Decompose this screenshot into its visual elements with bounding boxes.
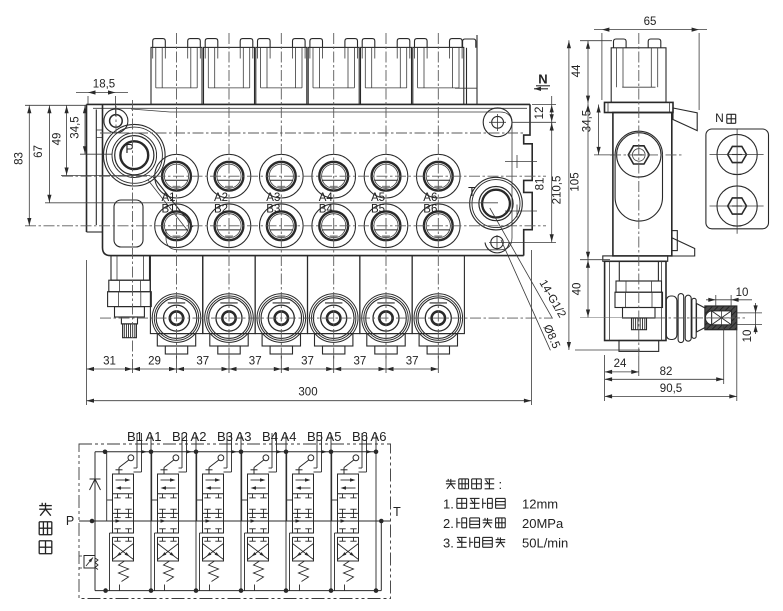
svg-text:210,5: 210,5 [552,176,564,205]
svg-text:N: N [538,72,547,87]
svg-text:37: 37 [354,356,367,368]
svg-text:40: 40 [572,283,584,296]
svg-text:49: 49 [52,133,64,146]
svg-text:T: T [393,505,401,519]
svg-text:37: 37 [301,356,314,368]
svg-text:A2: A2 [214,192,228,204]
svg-text:12mm: 12mm [522,497,558,512]
svg-text:37: 37 [249,356,262,368]
svg-text:44: 44 [571,64,583,77]
svg-text:31: 31 [103,356,116,368]
svg-text:37: 37 [196,356,209,368]
svg-text:B6: B6 [423,203,437,215]
svg-text:29: 29 [148,356,161,368]
svg-text:B2: B2 [214,203,228,215]
svg-text:A1: A1 [162,192,176,204]
svg-text:B4: B4 [319,203,334,215]
svg-text:A6: A6 [423,192,437,204]
svg-text:82: 82 [660,366,673,378]
svg-text:A3: A3 [266,192,280,204]
svg-text:18,5: 18,5 [93,79,115,91]
svg-text:A1: A1 [146,429,162,444]
svg-text:B1: B1 [127,429,143,444]
svg-text:A5: A5 [326,429,342,444]
svg-text:A6: A6 [371,429,387,444]
svg-text:T: T [468,185,476,199]
svg-text:B2: B2 [172,429,188,444]
svg-text:10: 10 [736,287,749,299]
svg-text:B1: B1 [162,203,176,215]
svg-text:N: N [715,111,724,125]
svg-text:20MPa: 20MPa [522,516,564,531]
svg-text:B6: B6 [352,429,368,444]
svg-text:B4: B4 [262,429,278,444]
svg-text:B5: B5 [307,429,323,444]
svg-text:2.: 2. [443,516,454,531]
svg-text:A2: A2 [191,429,207,444]
svg-text:3.: 3. [443,536,454,551]
svg-text:24: 24 [614,358,627,370]
svg-text:10: 10 [742,330,754,343]
svg-text:34,5: 34,5 [582,110,594,132]
svg-text:1.: 1. [443,497,454,512]
svg-text:37: 37 [406,356,419,368]
svg-text:B3: B3 [266,203,280,215]
svg-text:50L/min: 50L/min [522,536,568,551]
svg-text:A4: A4 [319,192,334,204]
svg-text:A4: A4 [281,429,297,444]
svg-text:12: 12 [534,107,546,120]
svg-text:P: P [66,514,74,528]
svg-text:105: 105 [570,172,582,191]
svg-text:34,5: 34,5 [70,116,82,138]
svg-text:67: 67 [33,145,45,158]
svg-text::: : [499,477,503,492]
svg-text:A5: A5 [371,192,385,204]
svg-text:65: 65 [644,16,657,28]
svg-text:83: 83 [14,152,26,165]
svg-text:B5: B5 [371,203,385,215]
svg-text:300: 300 [298,387,317,399]
svg-text:81: 81 [535,178,547,191]
svg-text:B3: B3 [217,429,233,444]
svg-text:A3: A3 [236,429,252,444]
svg-text:90,5: 90,5 [660,383,682,395]
